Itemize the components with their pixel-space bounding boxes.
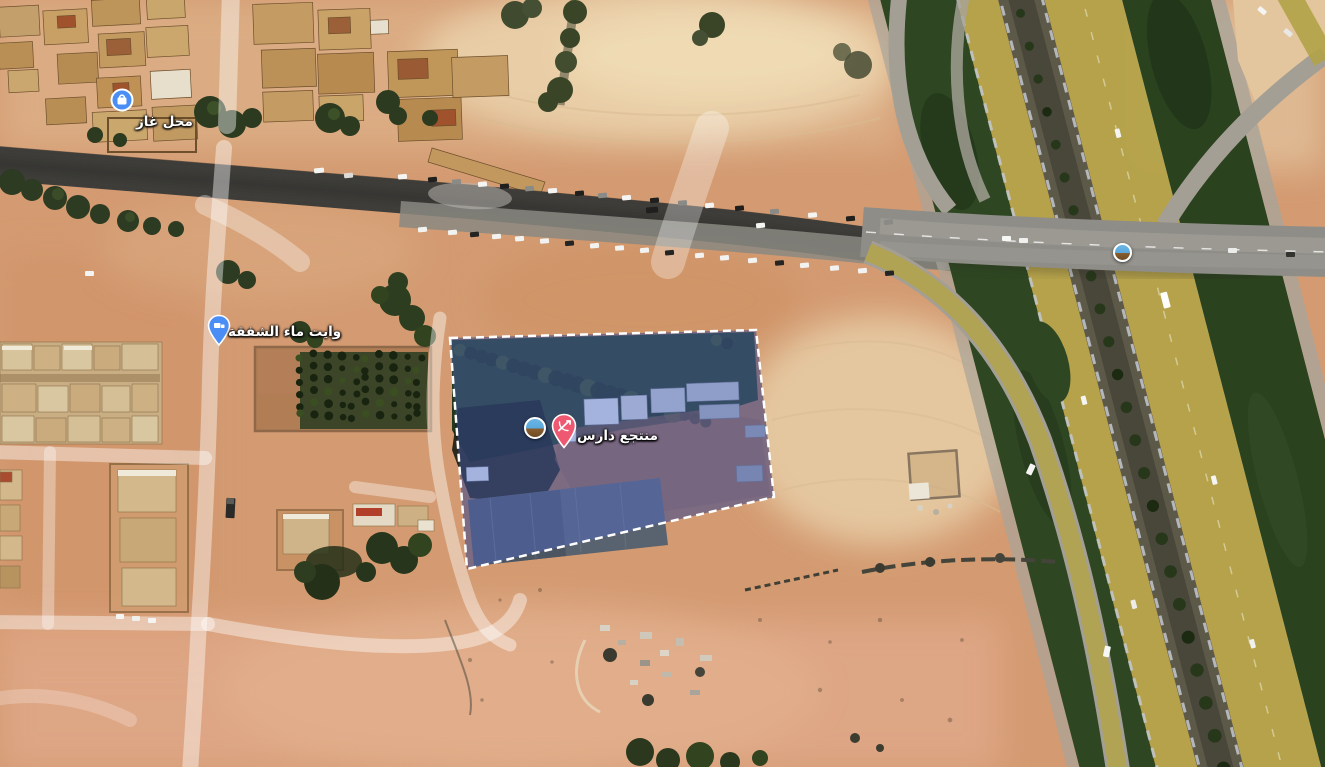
map-viewport[interactable]: محل غاز وايت ماء الشفقة منتجع دارس [0,0,1325,767]
highway-photo-thumbnail[interactable] [1113,243,1132,262]
poi-water-tanker-label[interactable]: وايت ماء الشفقة [228,324,341,340]
poi-gas-shop-label[interactable]: محل غاز [136,114,193,130]
satellite-imagery [0,0,1325,767]
resort-pin-icon [550,413,578,450]
shopping-bag-marker-icon [110,88,134,112]
poi-dars-resort-label[interactable]: منتجع دارس [577,428,658,444]
resort-photo-thumbnail[interactable] [524,417,546,439]
